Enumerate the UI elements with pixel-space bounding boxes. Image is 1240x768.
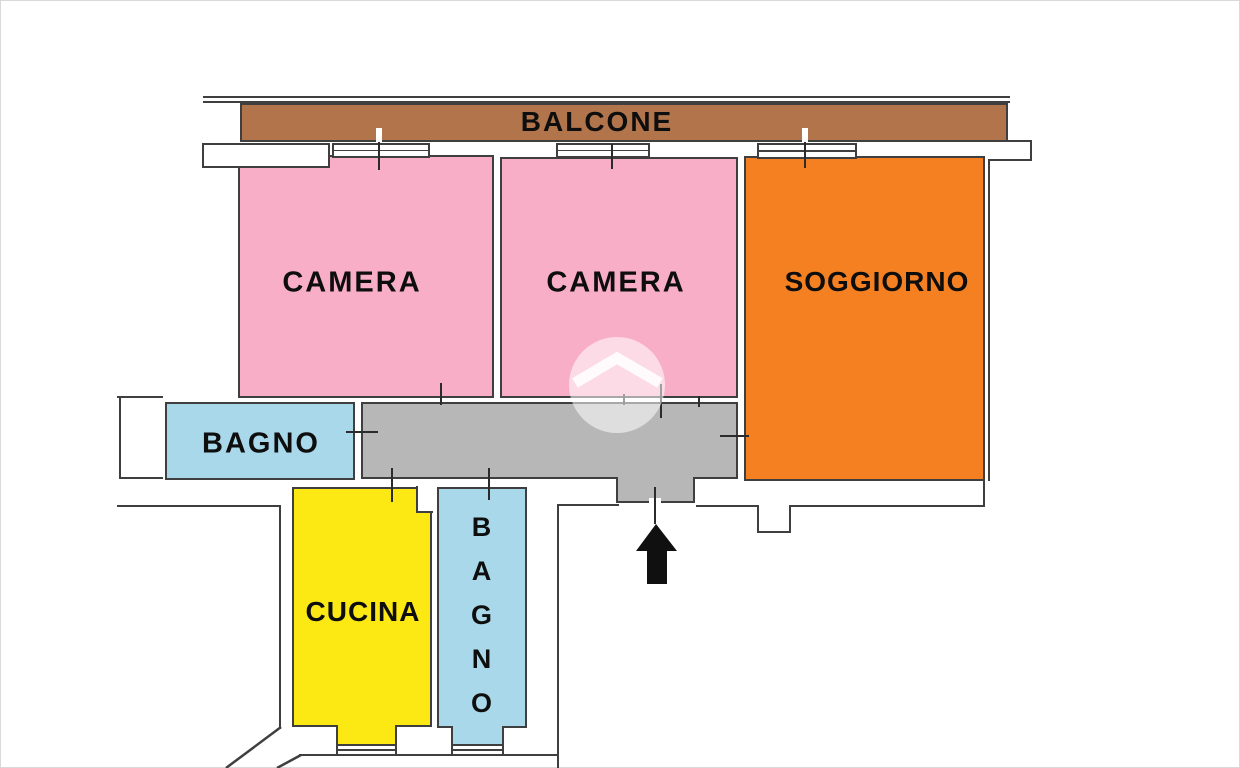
watermark-logo-icon	[569, 337, 665, 433]
wall-diagonal	[277, 755, 301, 768]
floor-plan: BALCONE CAMERA CAMERA SOGGIORNO BAGNO CU…	[0, 0, 1240, 768]
roof-chevron	[575, 358, 660, 383]
house-roof-icon	[569, 337, 665, 433]
entrance-arrow-icon	[636, 524, 677, 584]
wall-diagonal	[226, 727, 281, 768]
